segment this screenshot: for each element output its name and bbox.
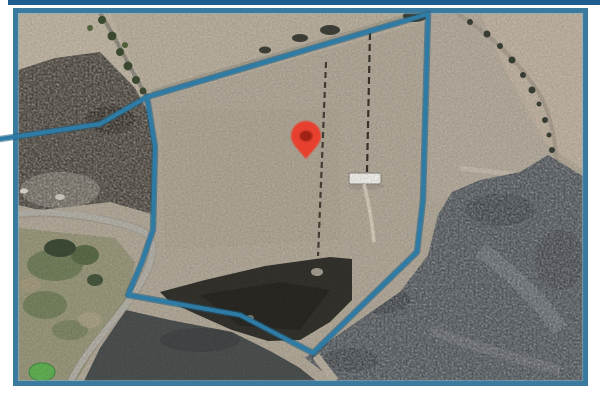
- map-viewport[interactable]: [0, 0, 600, 400]
- top-strip: [8, 0, 600, 5]
- pin-core-dot: [300, 131, 313, 142]
- texture-overlay: [18, 13, 583, 381]
- satellite-map-image: [0, 0, 600, 400]
- terrain-layer: [18, 10, 586, 383]
